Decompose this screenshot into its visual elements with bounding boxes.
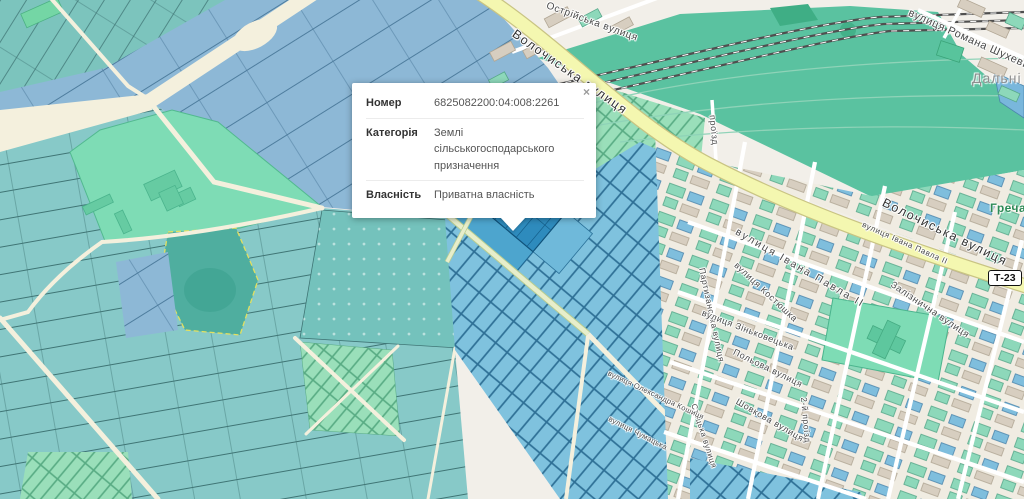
popup-row-ownership: Власність Приватна власність: [366, 180, 584, 210]
popup-row-label: Номер: [366, 95, 434, 112]
popup-tail: [500, 217, 526, 231]
road-ref-badge: Т-23: [988, 270, 1022, 286]
cadastral-map-viewport[interactable]: Волочиська вулиця Волочиська вулиця Остр…: [0, 0, 1024, 499]
allotment-gardens-corner: [20, 452, 132, 499]
parcel-info-popup: × Номер 6825082200:04:008:2261 Категорія…: [352, 83, 596, 218]
popup-row-label: Власність: [366, 187, 434, 204]
popup-row-value: Приватна власність: [434, 187, 584, 204]
popup-close-button[interactable]: ×: [581, 84, 592, 100]
popup-row-category: Категорія Землі сільськогосподарського п…: [366, 118, 584, 181]
field-parcel-dotted: [300, 210, 458, 348]
place-label-dalni: Дальні: [972, 70, 1022, 86]
place-label-hrechany: Гречани: [990, 201, 1024, 215]
popup-row-value: 6825082200:04:008:2261: [434, 95, 584, 112]
popup-row-label: Категорія: [366, 125, 434, 175]
small-blue-strips: [116, 252, 178, 338]
map-canvas[interactable]: [0, 0, 1024, 499]
popup-row-number: Номер 6825082200:04:008:2261: [366, 89, 584, 118]
popup-row-value: Землі сільськогосподарського призначення: [434, 125, 584, 175]
